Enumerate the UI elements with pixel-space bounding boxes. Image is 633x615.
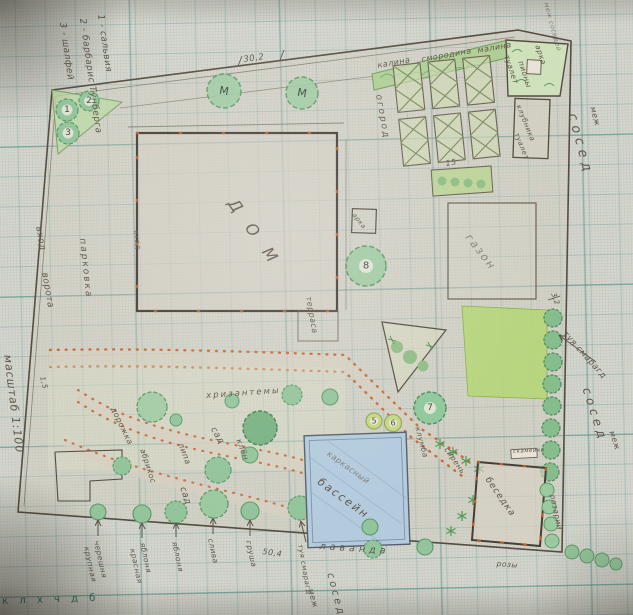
bed [393, 63, 425, 113]
label-house-entrance: вход [132, 230, 141, 250]
tree-number-5: 5 [371, 417, 376, 426]
tree-number-1: 1 [64, 105, 70, 115]
bed [399, 117, 431, 167]
small-bed [431, 166, 493, 196]
bed [468, 109, 500, 159]
label-roses: розы [496, 560, 518, 569]
lawn-patch [462, 306, 547, 399]
plan-photo: 1 - сальвия 2 - барбарис Тунберга 3 - ша… [0, 0, 633, 615]
corner-bushes [565, 545, 622, 570]
tree-number-6: 6 [390, 419, 395, 428]
dimension-bed: 15 [445, 158, 457, 167]
tree-number-2: 2 [86, 96, 92, 106]
lawn-square [448, 203, 536, 299]
tree-number-3: 3 [65, 128, 71, 138]
bed [434, 113, 466, 163]
tree-number-8: 8 [363, 261, 369, 272]
bed [463, 56, 495, 106]
bed [428, 59, 460, 109]
tree-number-7: 7 [427, 403, 433, 413]
